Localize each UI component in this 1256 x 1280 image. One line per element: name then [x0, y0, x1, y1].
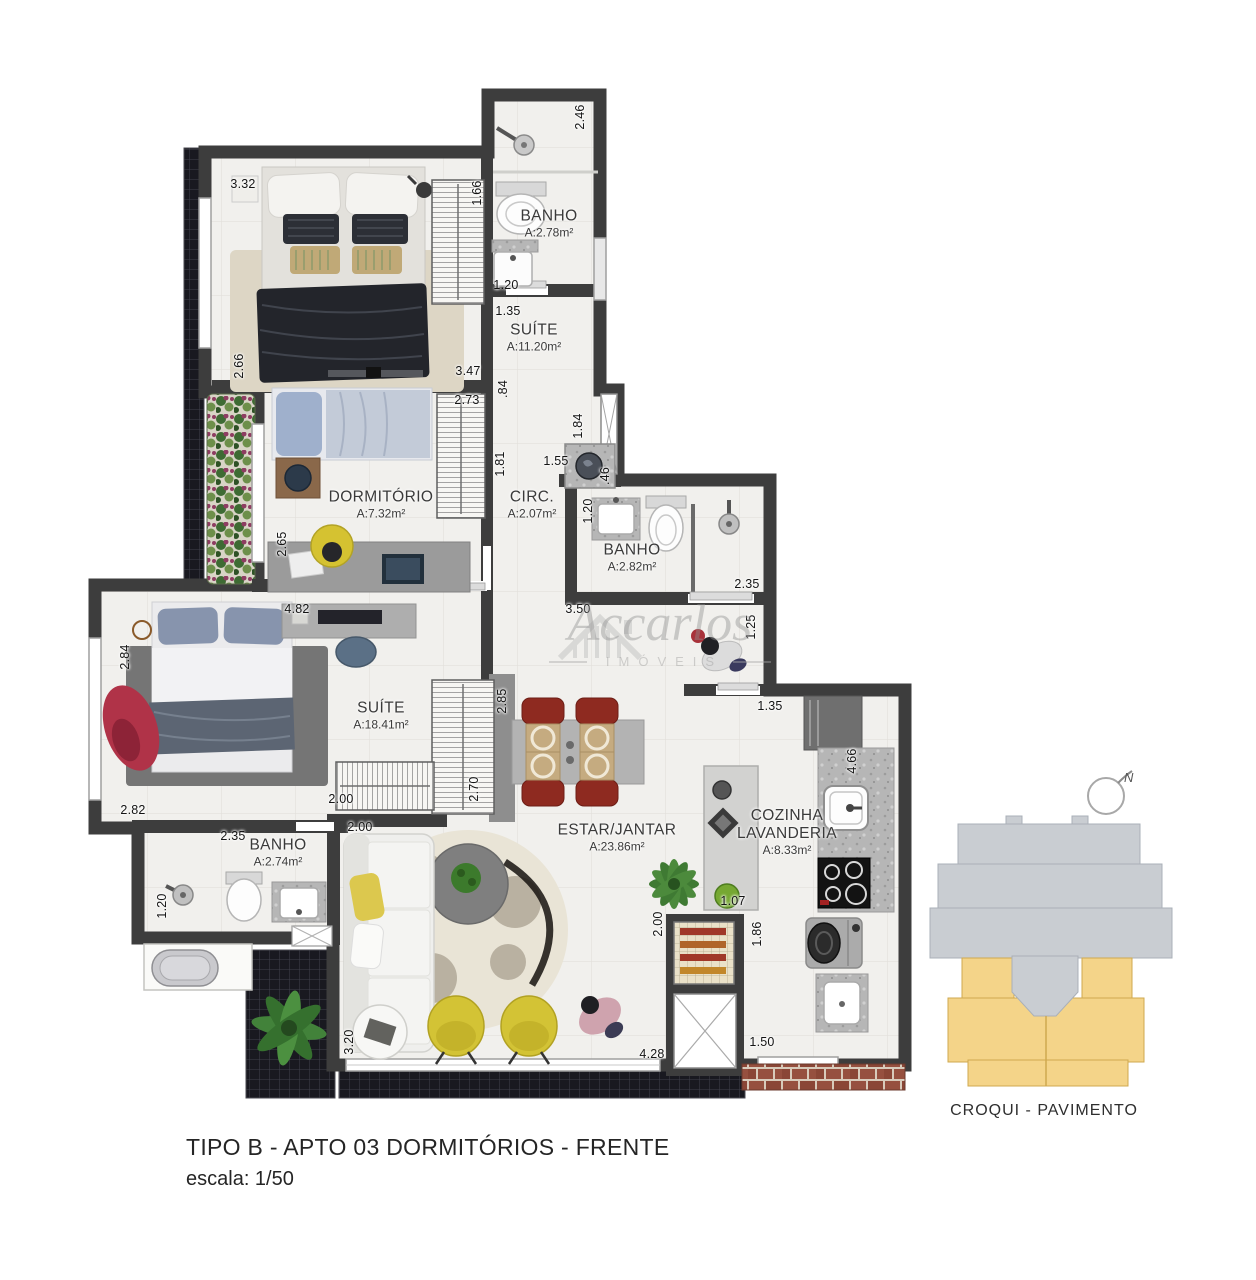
dimension-label: 1.50	[749, 1035, 774, 1049]
room-area: A:2.74m²	[249, 856, 306, 870]
dimension-label: 2.35	[220, 829, 245, 843]
dimension-label: 2.00	[328, 792, 353, 806]
room-name: COZINHA LAVANDERIA	[728, 807, 846, 843]
room-area: A:2.78m²	[520, 227, 577, 241]
plan-scale: escala: 1/50	[186, 1168, 670, 1191]
dimension-label: 2.84	[118, 644, 132, 669]
room-area: A:8.33m²	[728, 843, 846, 857]
dimension-label: 3.50	[565, 602, 590, 616]
dimension-label: 2.00	[347, 820, 372, 834]
dimension-label: 1.35	[495, 304, 520, 318]
dimension-label: 4.28	[639, 1047, 664, 1061]
dimension-label: .84	[496, 380, 510, 398]
dimension-label: 2.82	[120, 803, 145, 817]
room-name: BANHO	[520, 208, 577, 226]
room-label: BANHOA:2.82m²	[603, 542, 660, 575]
dimension-label: 1.84	[571, 413, 585, 438]
dimension-label: 1.55	[543, 454, 568, 468]
room-name: DORMITÓRIO	[329, 489, 434, 507]
north-label: N	[1124, 770, 1133, 785]
dimension-label: 1.35	[757, 699, 782, 713]
dimension-label: .46	[598, 467, 612, 485]
room-area: A:18.41m²	[353, 719, 408, 733]
dimension-label: 2.46	[573, 104, 587, 129]
dimension-label: 2.73	[454, 393, 479, 407]
dimension-label: 1.20	[155, 893, 169, 918]
room-name: ESTAR/JANTAR	[558, 822, 677, 840]
room-area: A:11.20m²	[507, 341, 561, 355]
planter	[207, 394, 255, 584]
dimension-label: 1.07	[720, 894, 745, 908]
floor-plan-sheet: BANHOA:2.78m²SUÍTEA:11.20m²DORMITÓRIOA:7…	[0, 0, 1256, 1280]
dimension-label: 4.66	[845, 748, 859, 773]
room-label: SUÍTEA:18.41m²	[353, 700, 408, 733]
dimension-label: 2.35	[734, 577, 759, 591]
room-label: BANHOA:2.78m²	[520, 208, 577, 241]
room-area: A:2.82m²	[603, 561, 660, 575]
room-label: COZINHA LAVANDERIAA:8.33m²	[728, 807, 846, 857]
dimension-label: 2.70	[467, 776, 481, 801]
dimension-label: 3.20	[342, 1029, 356, 1054]
brick-wall	[742, 1064, 905, 1090]
room-label: DORMITÓRIOA:7.32m²	[329, 489, 434, 522]
dimension-label: 2.65	[275, 531, 289, 556]
dimension-label: 4.82	[284, 602, 309, 616]
room-area: A:23.86m²	[558, 841, 677, 855]
dormitorio-closet	[437, 394, 485, 518]
floor-plan-drawing	[0, 0, 1256, 1280]
dimension-label: 3.32	[230, 177, 255, 191]
dimension-label: 2.00	[651, 911, 665, 936]
dimension-label: 1.86	[750, 921, 764, 946]
room-label: SUÍTEA:11.20m²	[507, 322, 561, 355]
title-block: TIPO B - APTO 03 DORMITÓRIOS - FRENTE es…	[186, 1134, 670, 1191]
croqui-caption: CROQUI - PAVIMENTO	[913, 1102, 1175, 1120]
room-name: BANHO	[249, 837, 306, 855]
dimension-label: 2.66	[232, 353, 246, 378]
plan-title: TIPO B - APTO 03 DORMITÓRIOS - FRENTE	[186, 1134, 670, 1161]
room-label: CIRC.A:2.07m²	[508, 489, 557, 522]
grill-elevator-block	[666, 914, 744, 1076]
room-name: BANHO	[603, 542, 660, 560]
croqui-diagram	[930, 771, 1172, 1086]
shower-partition	[691, 504, 695, 594]
room-area: A:7.32m²	[329, 508, 434, 522]
dimension-label: 1.66	[470, 180, 484, 205]
dimension-label: 1.81	[493, 451, 507, 476]
dimension-label: 1.25	[744, 614, 758, 639]
room-label: ESTAR/JANTARA:23.86m²	[558, 822, 677, 855]
dimension-label: 1.20	[493, 278, 518, 292]
room-area: A:2.07m²	[508, 508, 557, 522]
room-name: CIRC.	[508, 489, 557, 507]
room-name: SUÍTE	[507, 322, 561, 340]
room-label: BANHOA:2.74m²	[249, 837, 306, 870]
room-name: SUÍTE	[353, 700, 408, 718]
dimension-label: 3.47	[455, 364, 480, 378]
dimension-label: 1.20	[581, 498, 595, 523]
dimension-label: 2.85	[495, 688, 509, 713]
